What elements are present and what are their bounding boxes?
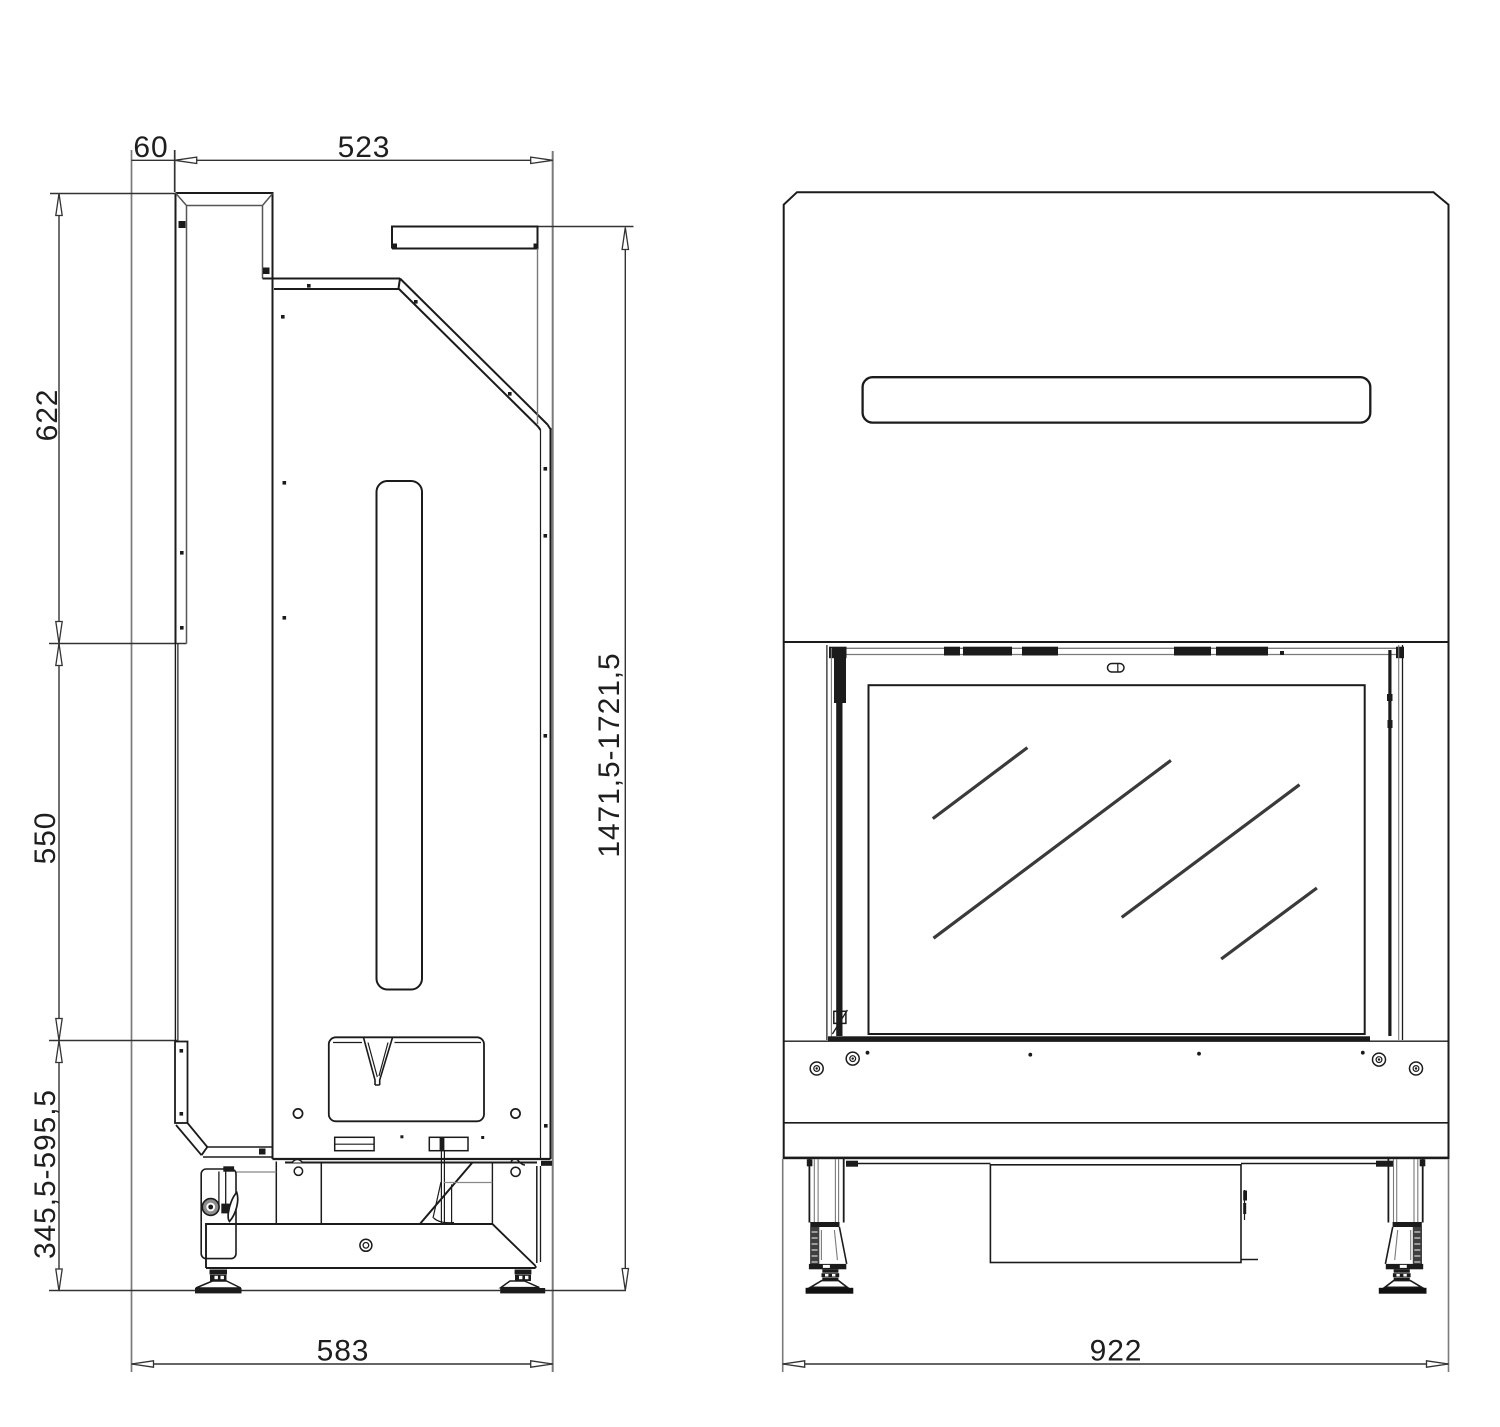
svg-text:60: 60 <box>133 131 168 164</box>
svg-text:550: 550 <box>29 812 62 865</box>
svg-text:622: 622 <box>31 389 64 442</box>
svg-text:583: 583 <box>317 1335 370 1368</box>
svg-text:922: 922 <box>1090 1335 1143 1368</box>
svg-text:1471,5-1721,5: 1471,5-1721,5 <box>593 652 626 857</box>
svg-text:523: 523 <box>338 131 391 164</box>
svg-text:345,5-595,5: 345,5-595,5 <box>29 1089 62 1259</box>
